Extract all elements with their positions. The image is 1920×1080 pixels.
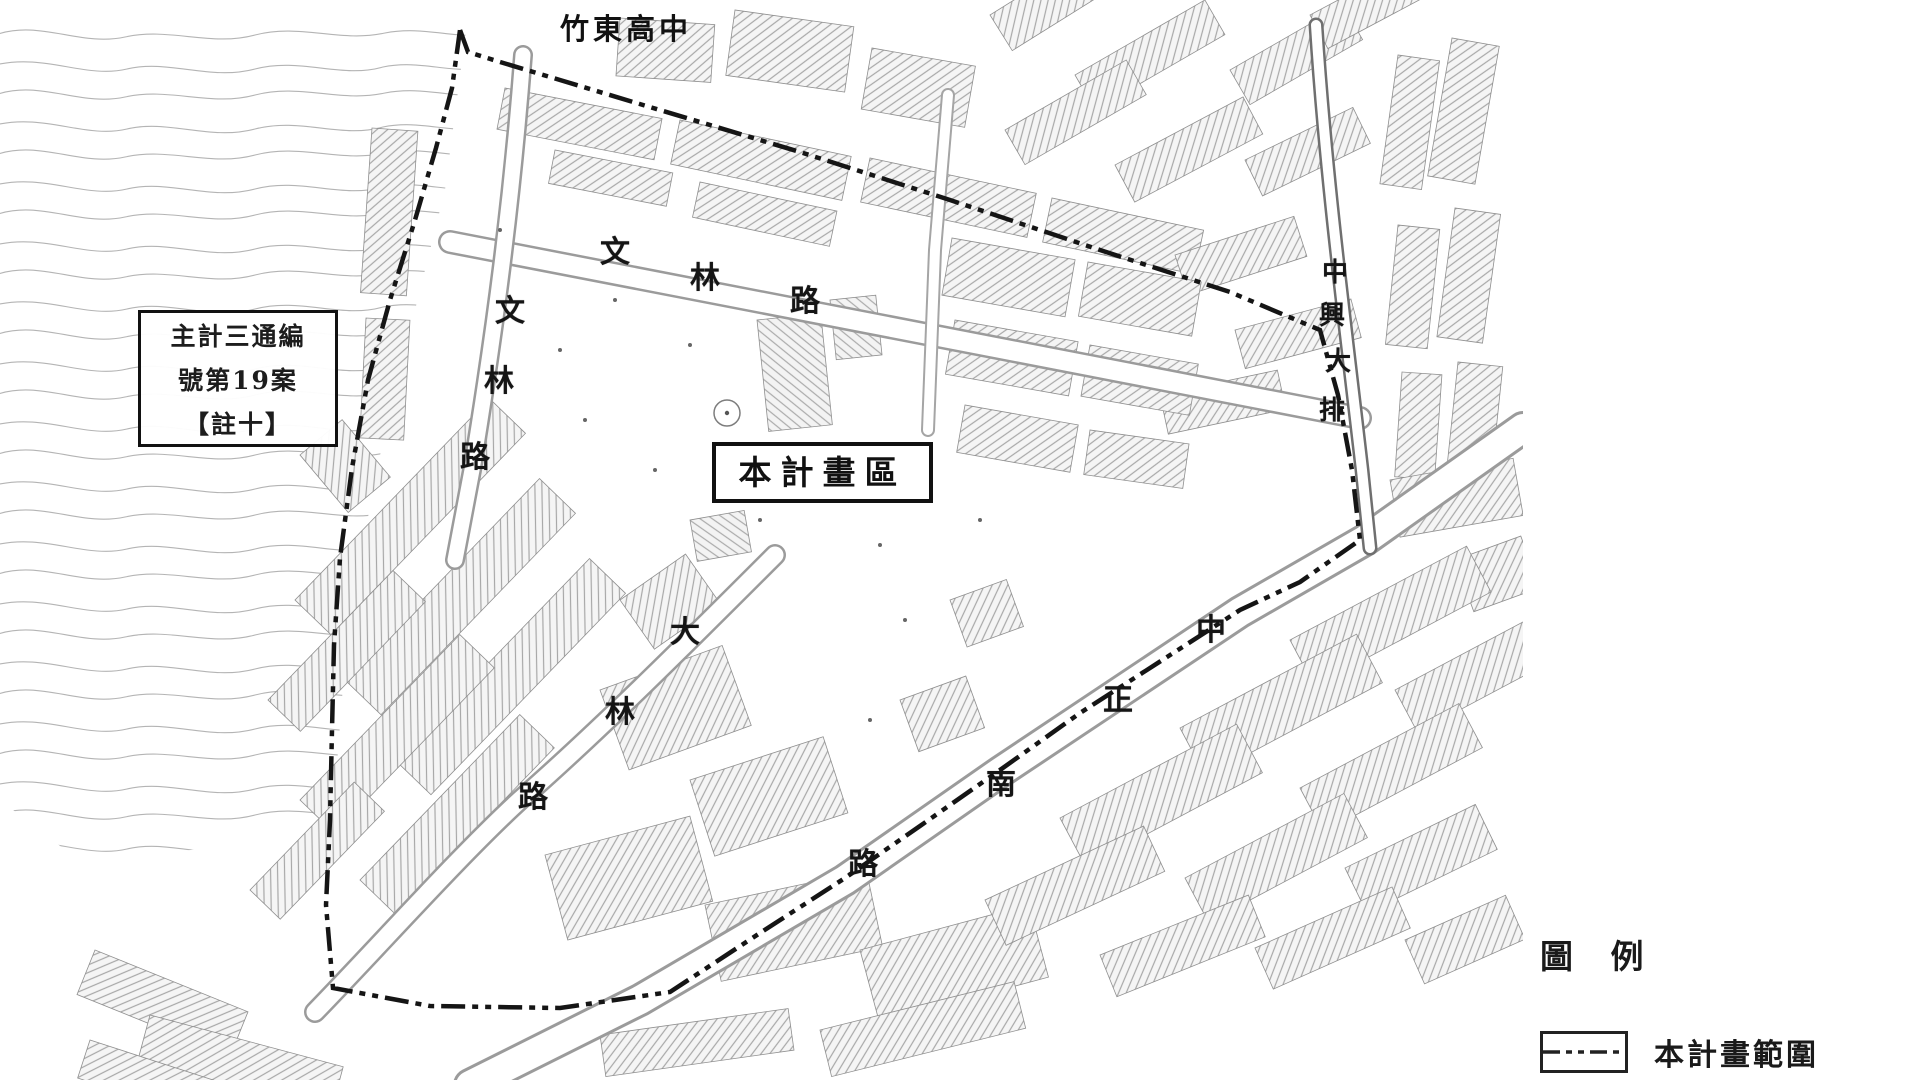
road-label-wenlin-left-char-0: 文: [495, 297, 525, 327]
cadastral-map-canvas: [0, 0, 1523, 1080]
case-note-line1: 主計三通編: [141, 317, 335, 353]
road-minor-vertical: [928, 95, 948, 430]
road-label-wenlin-top-char-0: 文: [600, 238, 630, 268]
legend-item-plan-boundary: 本計畫範圍: [1540, 1030, 1819, 1074]
road-label-wenlin-left-char-2: 路: [460, 443, 490, 473]
road-label-zhongzheng-char-1: 正: [1103, 686, 1133, 716]
road-label-wenlin-top-char-1: 林: [690, 264, 720, 294]
well-circle-symbol: [714, 400, 740, 426]
school-label: 竹東高中: [560, 6, 692, 48]
road-label-dalin-char-0: 大: [670, 618, 700, 648]
drain-label-zhongxing-char-2: 大: [1325, 349, 1351, 375]
case-note-line3: 【註十】: [141, 405, 335, 441]
planning-map-page: 竹東高中 文 林 路 文 林 路 大 林 路 中 正 南 路 中 興 大 排 主…: [0, 0, 1920, 1080]
road-label-zhongzheng-char-0: 中: [1196, 616, 1226, 646]
drain-label-zhongxing-char-3: 排: [1319, 398, 1345, 424]
plan-boundary-symbol-box: [1540, 1031, 1628, 1073]
road-label-dalin-char-1: 林: [605, 698, 635, 728]
road-label-zhongzheng-char-2: 南: [986, 770, 1016, 800]
road-label-zhongzheng-char-3: 路: [848, 850, 878, 880]
plan-boundary-dash-icon: [1543, 1034, 1625, 1070]
case-note-box: 主計三通編 號第19案 【註十】: [138, 310, 338, 447]
legend-item-label: 本計畫範圍: [1654, 1030, 1819, 1074]
plan-area-box: 本計畫區: [712, 442, 933, 503]
road-label-wenlin-top-char-2: 路: [790, 287, 820, 317]
drain-label-zhongxing-char-1: 興: [1319, 303, 1345, 329]
legend: 圖 例 本計畫範圍: [1540, 930, 1910, 978]
legend-title: 圖 例: [1540, 930, 1910, 978]
case-note-line2: 號第19案: [141, 361, 335, 397]
road-label-wenlin-left-char-1: 林: [484, 367, 514, 397]
road-label-dalin-char-2: 路: [518, 783, 548, 813]
drain-label-zhongxing-char-0: 中: [1322, 260, 1348, 286]
